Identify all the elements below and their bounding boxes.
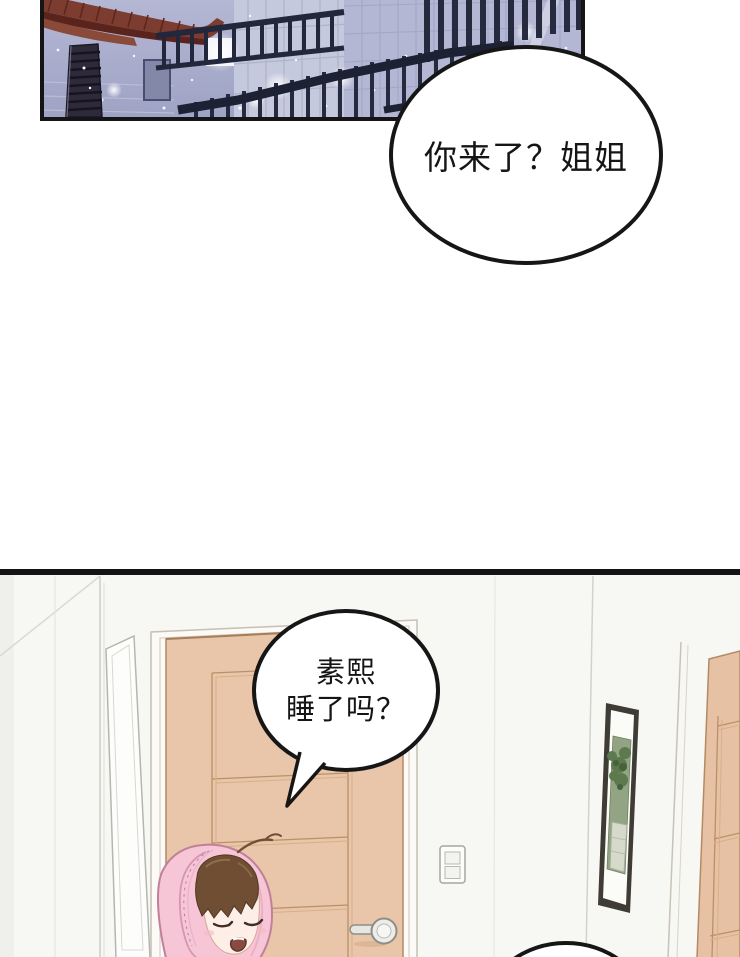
frame-art-vase <box>610 822 627 872</box>
comic-page: 你来了？姐姐 <box>0 0 740 957</box>
speech-text-hallway-line1: 素熙 <box>316 655 376 689</box>
speech-text-hallway-line2: 睡了吗？ <box>286 692 406 726</box>
light-switch <box>440 846 465 883</box>
speech-bubble-top: 你来了？姐姐 <box>389 45 663 265</box>
speech-text-hallway: 素熙 睡了吗？ <box>286 654 406 727</box>
speech-bubble-tail <box>268 744 332 812</box>
speech-text-top: 你来了？姐姐 <box>424 131 628 179</box>
pillar <box>66 44 102 117</box>
